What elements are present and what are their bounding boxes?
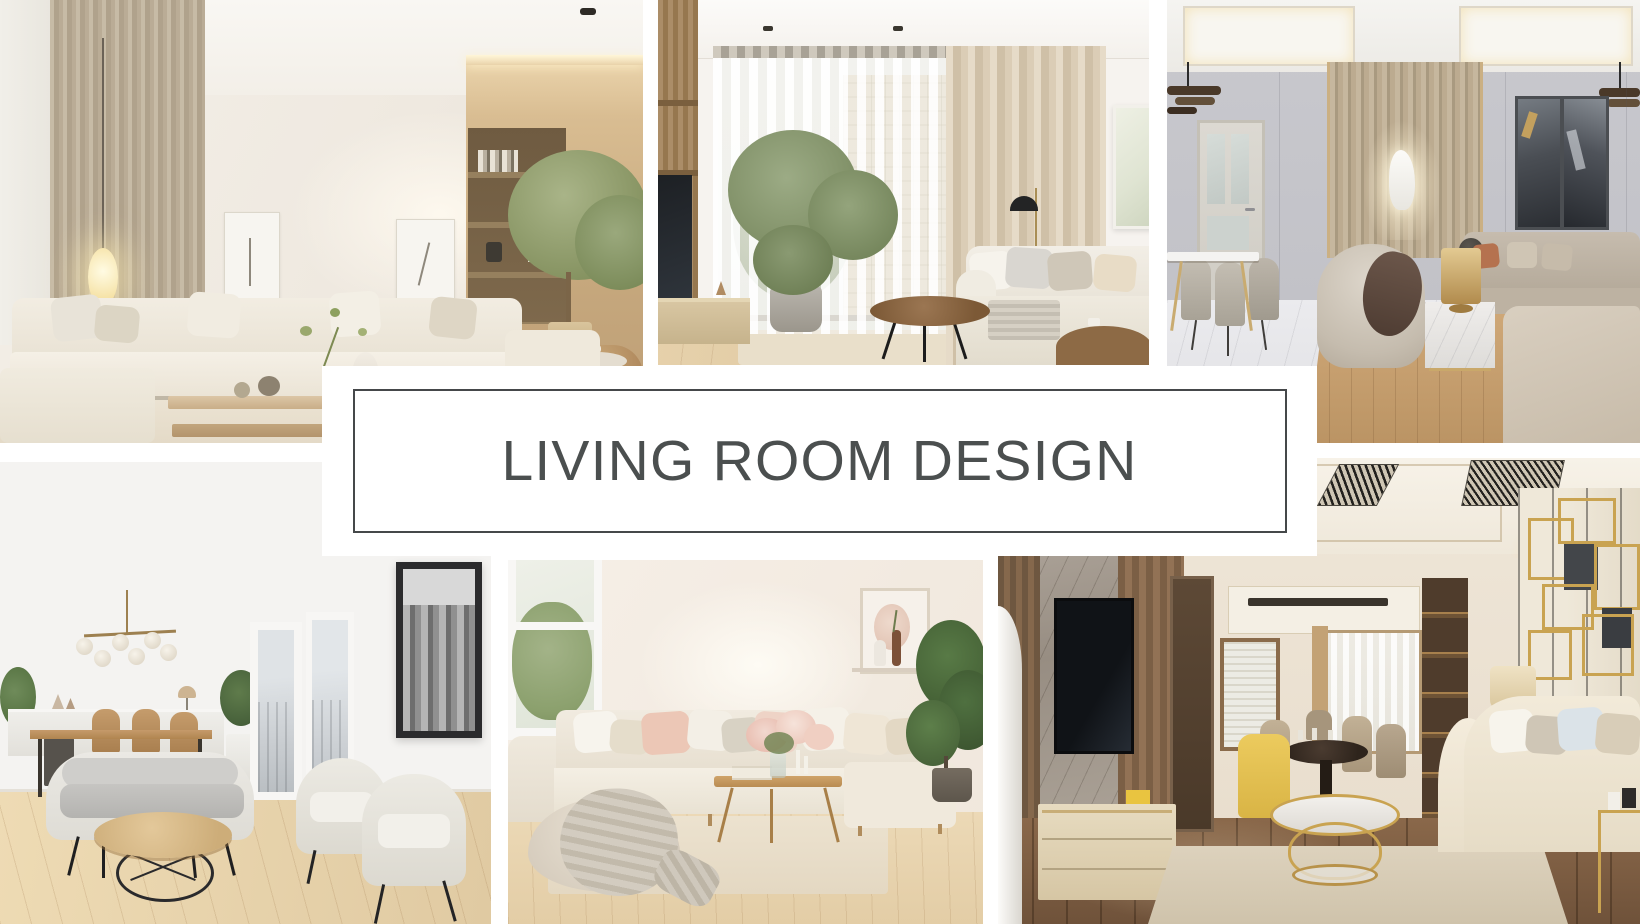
window-mullion [516, 622, 594, 630]
candle [804, 756, 808, 774]
wall-art-dark [1515, 96, 1563, 230]
pendant-lamp [1187, 62, 1189, 86]
armchair-seat [378, 814, 450, 848]
led-cove-light [466, 55, 643, 65]
dining-chair [1181, 258, 1211, 320]
table-leg [38, 739, 42, 797]
candle [796, 750, 800, 774]
chandelier-globe [94, 650, 111, 667]
coffee-table-leg [770, 789, 773, 843]
pillow [428, 296, 478, 341]
tv [658, 175, 692, 303]
window-city-view [258, 702, 294, 792]
pillow [641, 710, 692, 755]
wall-art [396, 219, 455, 309]
shelf-board [658, 100, 698, 106]
shelf-vase [486, 242, 502, 262]
gold-frame [1558, 498, 1616, 544]
wall-art-dark [1561, 96, 1609, 230]
spotlight-icon [763, 26, 773, 31]
gold-table-base [1429, 368, 1491, 371]
chandelier-globe [128, 648, 145, 665]
pillow [1507, 242, 1537, 268]
branch-leaves [300, 326, 312, 336]
title-frame: LIVING ROOM DESIGN [353, 389, 1287, 533]
chandelier-globe [160, 644, 177, 661]
gold-frame [1582, 614, 1634, 676]
table-lamp-stem [186, 698, 188, 710]
dining-chair [1215, 262, 1245, 326]
chandelier-globe [112, 634, 129, 651]
curtain-track [713, 46, 953, 58]
decor-cylinder [1608, 792, 1620, 810]
pillow [1541, 243, 1573, 272]
plant-pot [932, 768, 972, 802]
chandelier-globe [144, 632, 161, 649]
art-line [249, 238, 251, 286]
pendant-cord [102, 38, 104, 250]
console-drawer-line [1042, 868, 1172, 870]
tv [1054, 598, 1134, 754]
decor-ball [258, 376, 280, 396]
spotlight-icon [580, 8, 596, 15]
chandelier-globe [76, 638, 93, 655]
pendant-lamp [1167, 86, 1221, 95]
dining-table [1167, 252, 1259, 261]
media-console [1038, 804, 1176, 900]
title-banner: LIVING ROOM DESIGN [322, 366, 1317, 556]
plant-foliage [906, 700, 960, 766]
collage-canvas: LIVING ROOM DESIGN [0, 0, 1640, 924]
pillow [1005, 246, 1054, 289]
chair-leg [1227, 326, 1229, 356]
city-photo-sky [403, 569, 475, 605]
decor-ball [234, 382, 250, 398]
pendant-lamp [1175, 97, 1215, 105]
dining-chair [1249, 258, 1279, 320]
dining-chair [1376, 724, 1406, 778]
doorway [1170, 576, 1214, 832]
ceiling-recess [1183, 6, 1355, 66]
window-tree-view [512, 602, 592, 720]
branch-leaves [330, 308, 340, 317]
console-drawer-line [1042, 838, 1172, 840]
yellow-decor-box [1126, 790, 1150, 804]
door-glass [1207, 216, 1249, 250]
glass-vase [770, 752, 786, 778]
sofa-corner [1503, 306, 1640, 443]
sofa-leg [938, 824, 942, 834]
media-cabinet [658, 298, 750, 344]
door-glass [1207, 134, 1225, 204]
gold-lamp-base [1449, 304, 1473, 313]
coffee-table-top [870, 296, 990, 326]
flower-greens [764, 732, 794, 754]
wine-glass [1298, 730, 1303, 740]
wall-seam [1279, 72, 1280, 300]
pendant-lamp [1607, 99, 1640, 107]
pendant-lamp [1619, 62, 1621, 88]
console-gold-trim [1042, 810, 1172, 813]
vase [874, 640, 886, 666]
pillow [1047, 251, 1094, 292]
linear-ac-vent [1248, 598, 1388, 606]
table-lamp [178, 686, 196, 698]
wall-art [1113, 105, 1149, 229]
dining-table [30, 730, 212, 739]
wine-glass [1312, 728, 1317, 740]
photo-bottom-middle [508, 560, 983, 924]
pendant-lamp [1167, 107, 1197, 114]
side-table-gold [1598, 810, 1640, 913]
side-table [1056, 326, 1149, 365]
spotlight-icon [893, 26, 903, 31]
book-stack [732, 766, 772, 780]
sofa-leg [858, 826, 862, 836]
wine-glass [1328, 730, 1333, 740]
throw-blanket [988, 300, 1060, 340]
door-handle [1245, 208, 1255, 211]
decor-cone [66, 698, 75, 709]
pillow [842, 712, 891, 756]
gold-frame [1594, 544, 1640, 610]
coffee-table-lower-shelf [1292, 864, 1378, 886]
decor-frame [1622, 788, 1636, 808]
sofa-leg [708, 814, 712, 826]
gold-lamp [1441, 248, 1481, 304]
pillow [187, 291, 242, 339]
vase [892, 630, 901, 666]
photo-top-middle [658, 0, 1149, 365]
books [478, 150, 518, 172]
branch-leaves [358, 328, 367, 336]
door-glass [1231, 134, 1249, 204]
sofa-chaise [0, 368, 155, 443]
decor-cone [52, 694, 64, 709]
plant-foliage [753, 225, 833, 295]
pillow [1093, 253, 1138, 293]
chandelier-stem [126, 590, 128, 634]
cup [1088, 318, 1100, 326]
city-photo-buildings [403, 605, 475, 731]
pillow [94, 304, 141, 344]
coffee-table-top [94, 812, 232, 858]
pillow [1594, 712, 1640, 756]
collage-title: LIVING ROOM DESIGN [501, 428, 1137, 494]
chandelier-bar [84, 630, 176, 638]
ceiling-recess [1459, 6, 1633, 66]
flower-bouquet [804, 724, 834, 750]
coffee-table-leg [923, 322, 926, 362]
white-pillar [998, 606, 1022, 924]
